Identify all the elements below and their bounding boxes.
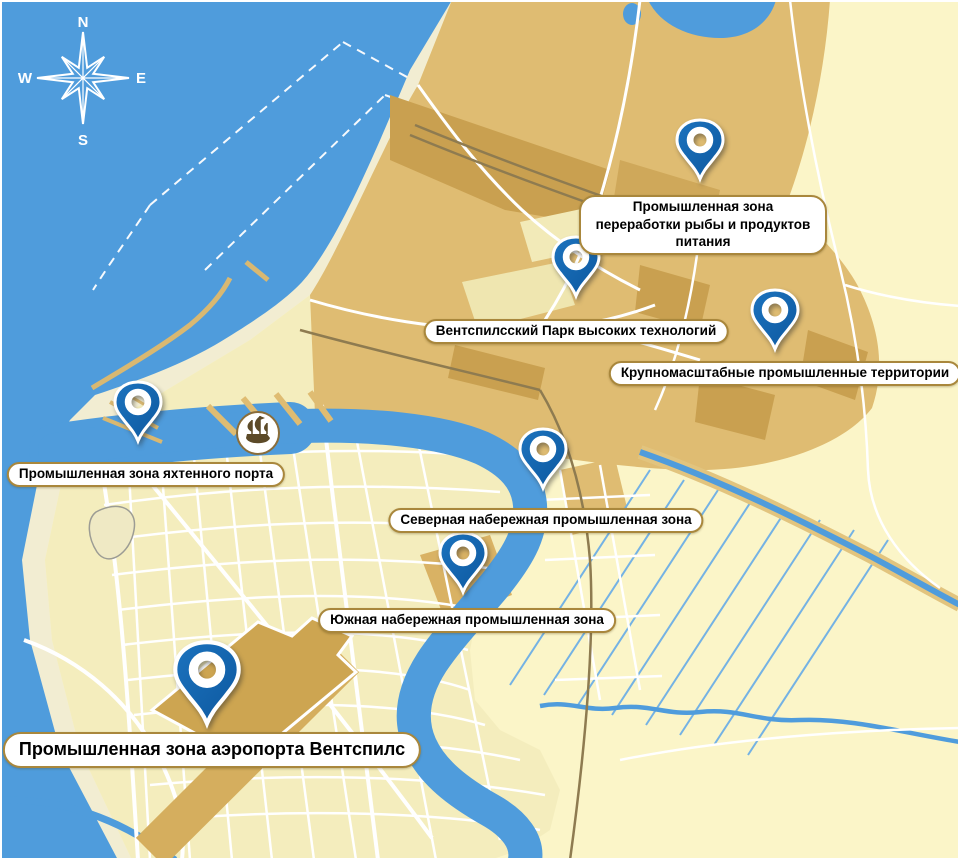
pin-north-embankment-zone[interactable]	[517, 426, 569, 492]
pin-yacht-port-zone[interactable]	[112, 379, 164, 445]
compass-s: S	[78, 132, 88, 149]
pin-airport-zone[interactable]	[171, 638, 244, 729]
label-high-tech-park: Вентспилсский Парк высоких технологий	[424, 319, 729, 344]
compass-w: W	[18, 70, 33, 87]
label-airport-zone: Промышленная зона аэропорта Вентспилс	[3, 732, 421, 768]
pin-large-scale-territories[interactable]	[749, 287, 801, 353]
pin-fish-processing-zone[interactable]	[674, 117, 726, 183]
compass-e: E	[136, 70, 146, 87]
ventspils-industrial-map: N E S W	[0, 0, 960, 860]
label-large-scale-territories: Крупномасштабные промышленные территории	[609, 361, 960, 386]
label-fish-processing-zone: Промышленная зона переработки рыбы и про…	[579, 195, 827, 255]
label-north-embankment-zone: Северная набережная промышленная зона	[388, 508, 703, 533]
pin-south-embankment-zone[interactable]	[437, 530, 489, 596]
compass-n: N	[78, 14, 89, 31]
label-south-embankment-zone: Южная набережная промышленная зона	[318, 608, 616, 633]
ship-emblem	[237, 412, 279, 454]
label-yacht-port-zone: Промышленная зона яхтенного порта	[7, 462, 285, 487]
